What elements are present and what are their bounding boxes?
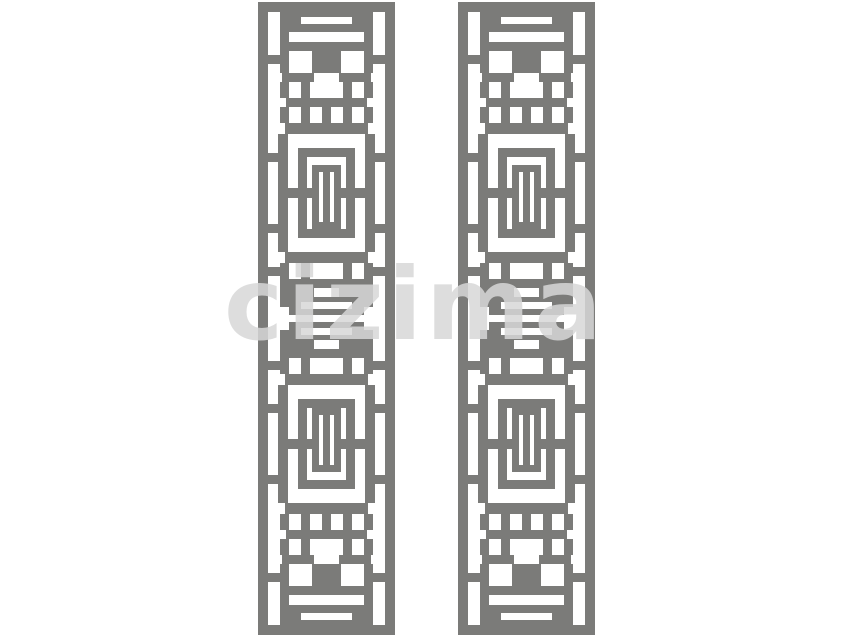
canvas: cizima [0,0,850,638]
lattice-left-panel [258,2,395,635]
right-panel-svg [458,2,595,635]
lattice-right-panel [458,2,595,635]
left-panel-svg [258,2,395,635]
